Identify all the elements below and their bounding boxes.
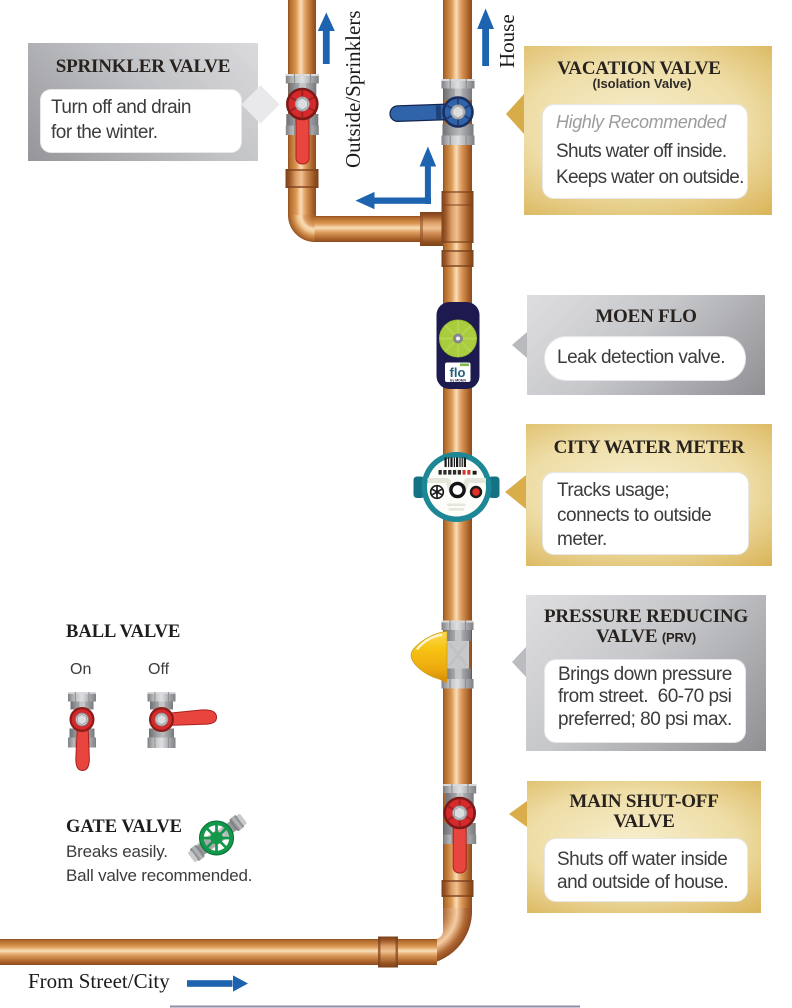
svg-text:by MOEN: by MOEN [450, 379, 466, 383]
